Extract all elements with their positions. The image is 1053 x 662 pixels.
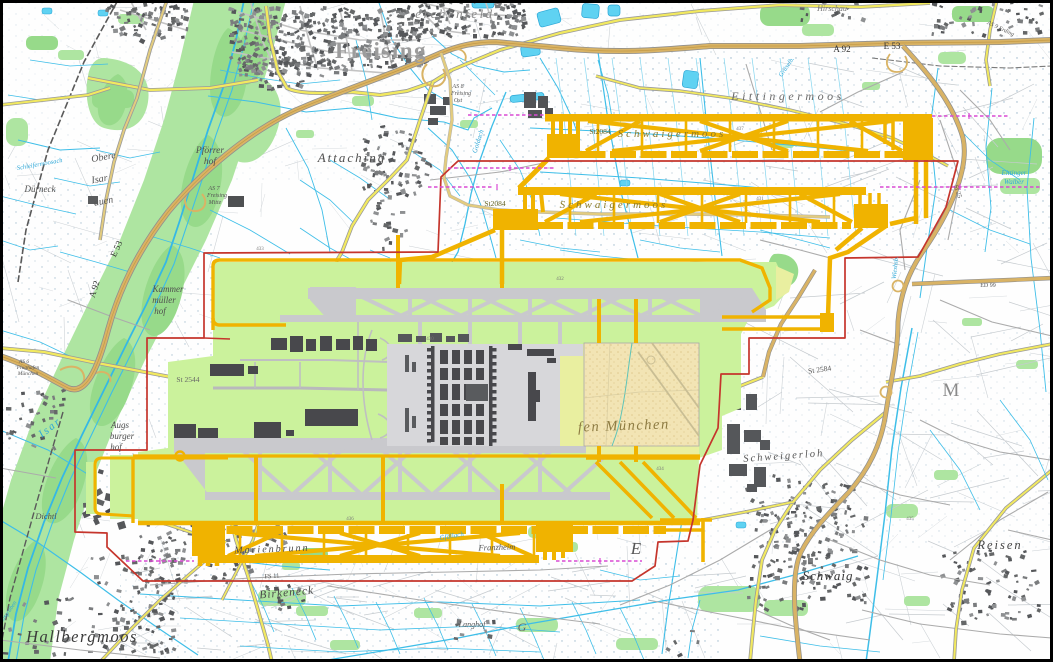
svg-text:München: München [17, 371, 39, 377]
svg-text:Hirschau: Hirschau [816, 4, 847, 13]
svg-text:A 92: A 92 [833, 44, 850, 54]
svg-text:E 53: E 53 [884, 41, 901, 51]
svg-text:burger: burger [110, 431, 135, 441]
svg-text:Schwaigermoos: Schwaigermoos [560, 199, 669, 211]
svg-text:Franzheim: Franzheim [477, 541, 515, 552]
svg-text:müller: müller [152, 295, 176, 305]
svg-text:fen München: fen München [578, 416, 670, 435]
svg-text:AS 8: AS 8 [451, 84, 463, 90]
svg-text:Freising: Freising [335, 38, 427, 63]
svg-text:AS 7: AS 7 [207, 186, 220, 192]
svg-text:M: M [943, 380, 960, 401]
svg-text:Schwaigermoos: Schwaigermoos [618, 128, 727, 140]
svg-text:Flughafen: Flughafen [16, 364, 40, 371]
svg-text:Augs: Augs [110, 420, 129, 430]
svg-text:Hallbergmoos: Hallbergmoos [25, 627, 138, 646]
svg-text:hof: hof [154, 306, 167, 316]
svg-text:E: E [630, 539, 642, 558]
svg-text:Ost: Ost [454, 98, 463, 104]
svg-text:Dichtl: Dichtl [34, 511, 57, 521]
svg-text:Eittingermoos: Eittingermoos [730, 89, 845, 103]
svg-text:Walber: Walber [1004, 178, 1024, 186]
svg-text:436: 436 [346, 517, 354, 522]
svg-text:erchenfeld: erchenfeld [415, 6, 494, 21]
svg-text:G: G [518, 620, 527, 634]
svg-text:St 2544: St 2544 [176, 375, 199, 384]
svg-text:435: 435 [906, 517, 914, 522]
svg-text:Langhof: Langhof [458, 620, 487, 629]
svg-text:FS 11: FS 11 [264, 573, 279, 581]
svg-text:437: 437 [736, 127, 744, 132]
svg-text:Eittinger: Eittinger [1001, 169, 1027, 177]
svg-text:Pförrer: Pförrer [195, 145, 224, 156]
svg-text:Schwaig: Schwaig [802, 568, 853, 583]
svg-text:434: 434 [656, 467, 664, 472]
svg-text:Attaching: Attaching [317, 150, 387, 165]
svg-text:Dürneck: Dürneck [24, 184, 57, 194]
svg-text:St2084: St2084 [484, 199, 506, 208]
svg-text:432: 432 [556, 277, 564, 282]
svg-text:Freising: Freising [450, 91, 471, 97]
svg-text:Mitte: Mitte [208, 200, 222, 206]
svg-text:St2084: St2084 [589, 127, 611, 136]
svg-text:hof: hof [204, 156, 218, 167]
svg-text:hof: hof [110, 442, 123, 452]
svg-text:Freising: Freising [206, 193, 227, 199]
svg-text:433: 433 [256, 247, 264, 252]
svg-text:ED 99: ED 99 [980, 283, 996, 289]
svg-text:Kammer: Kammer [152, 284, 184, 294]
svg-text:431: 431 [756, 197, 764, 202]
svg-text:430: 430 [426, 337, 434, 342]
svg-text:Reisen: Reisen [976, 538, 1022, 552]
